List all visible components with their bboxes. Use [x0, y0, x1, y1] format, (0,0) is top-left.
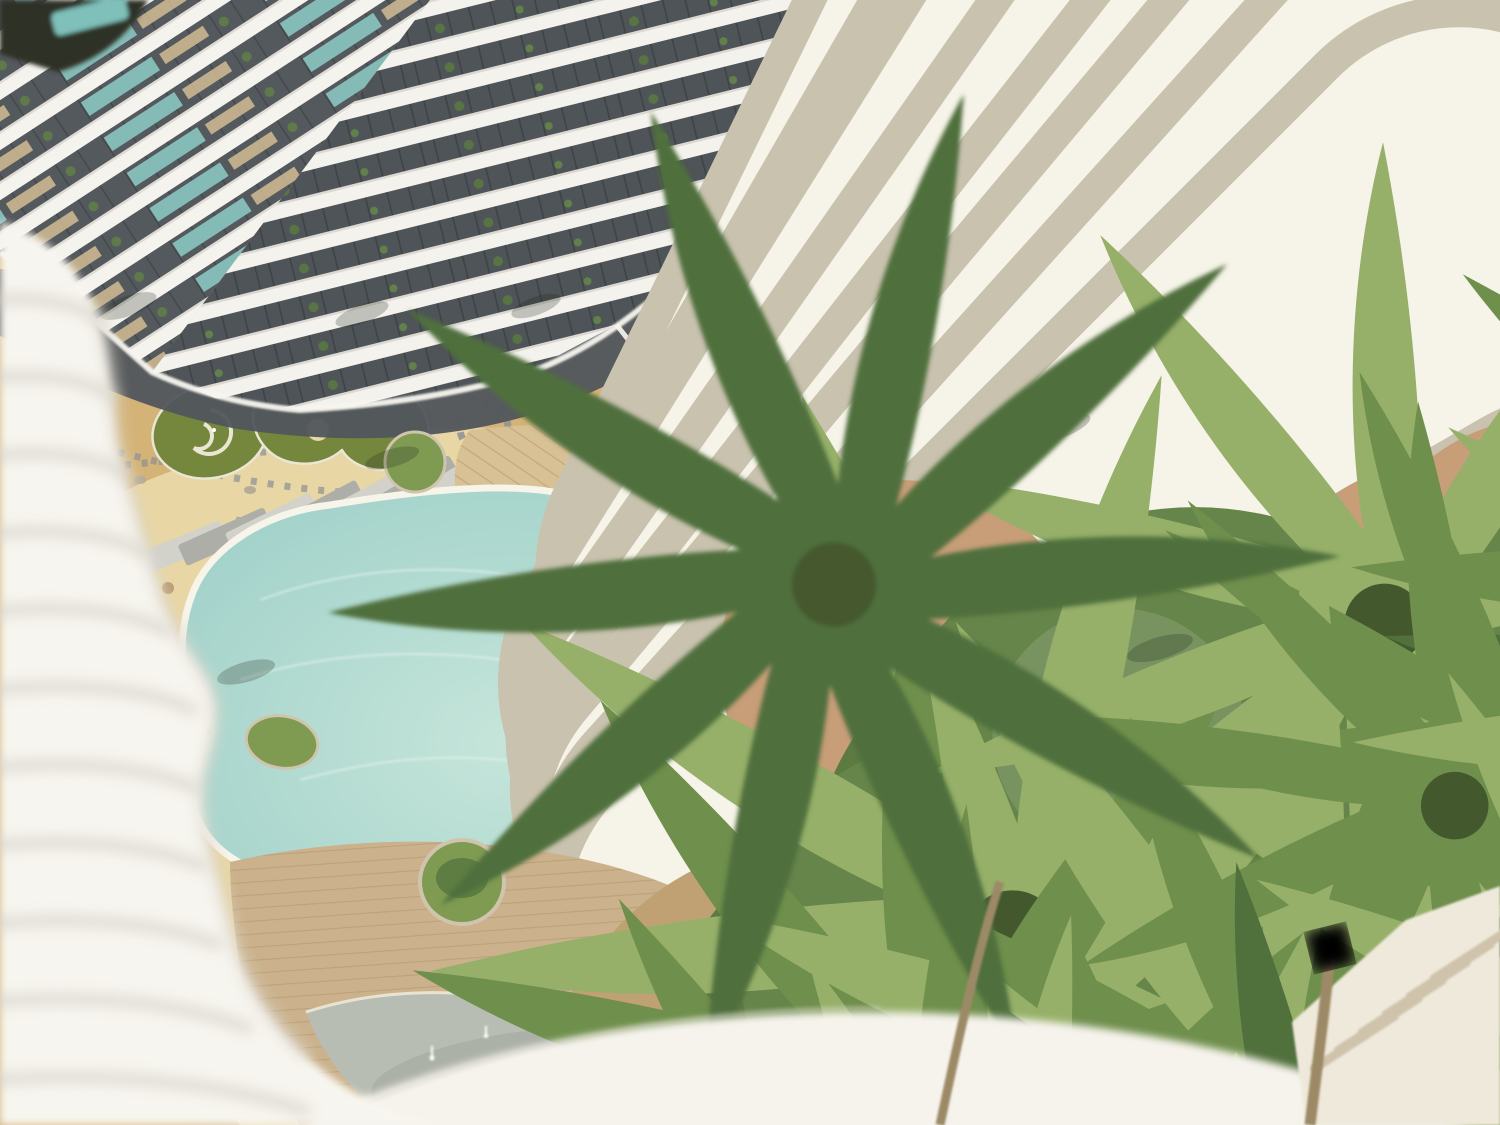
- resort-aerial-render: [0, 0, 1500, 1125]
- render-canvas: [0, 0, 1500, 1125]
